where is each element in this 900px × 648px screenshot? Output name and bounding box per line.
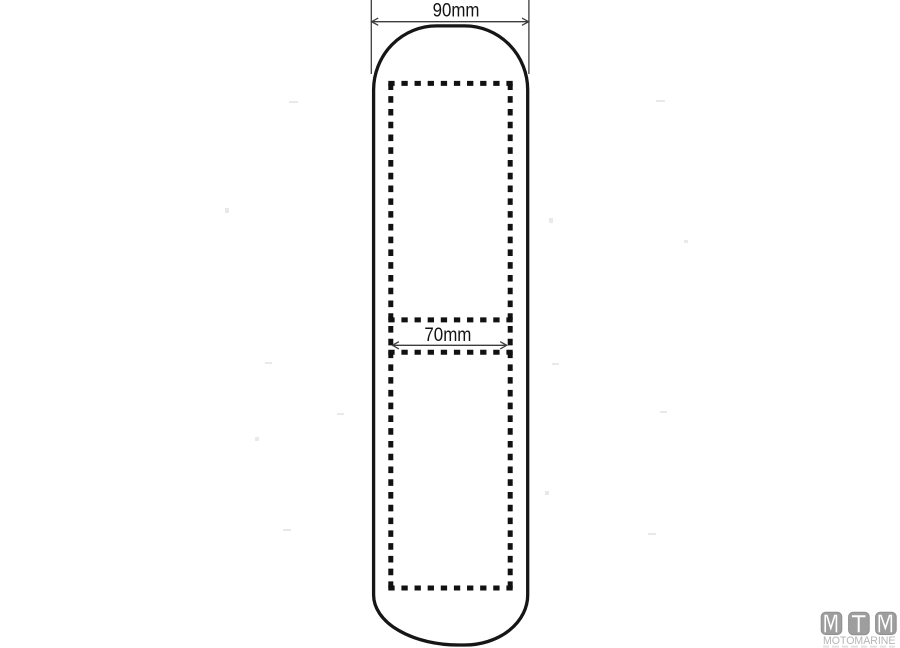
svg-text:70mm: 70mm [424, 325, 471, 346]
svg-text:MOTOMARINE: MOTOMARINE [823, 635, 895, 647]
svg-text:90mm: 90mm [433, 1, 480, 22]
